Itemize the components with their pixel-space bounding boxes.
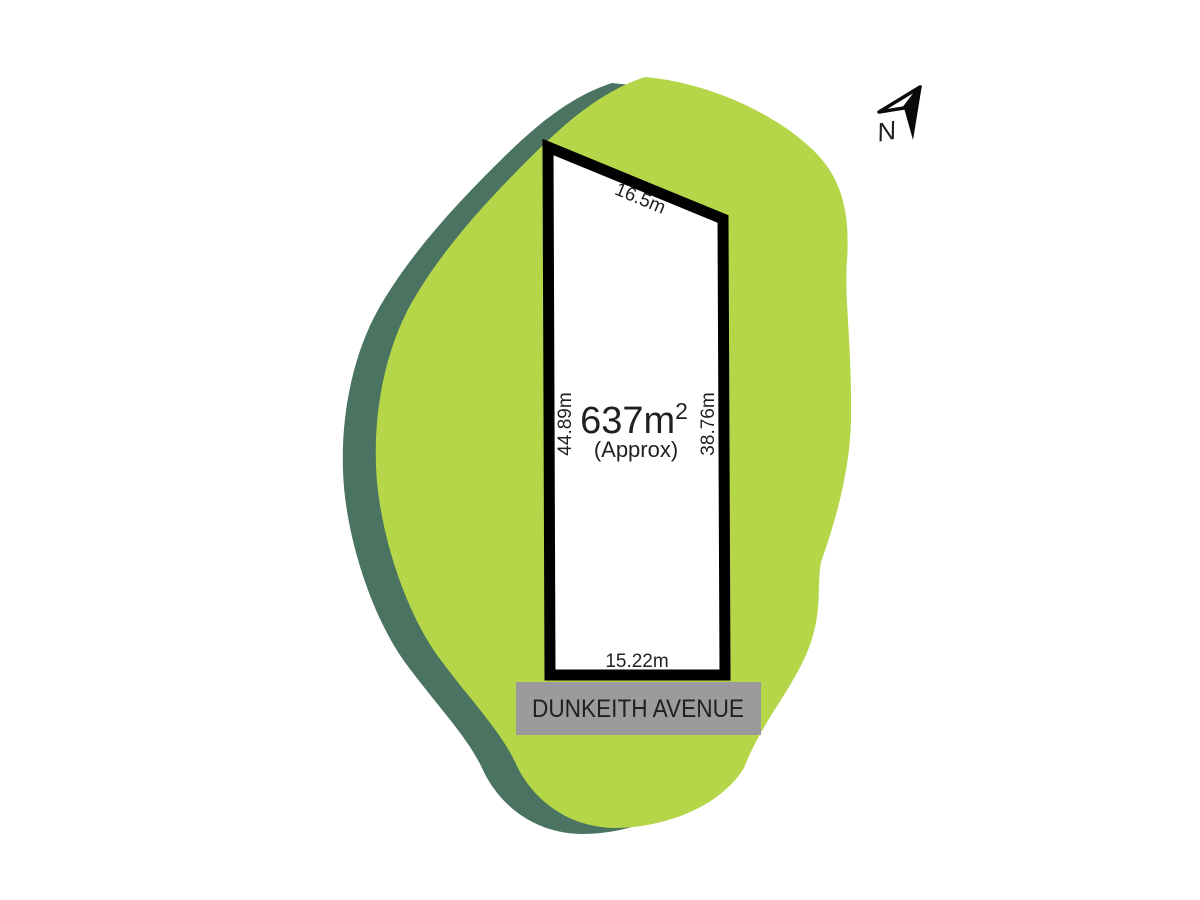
lot-area-superscript: 2	[675, 398, 688, 424]
lot-area-value: 637m	[580, 400, 675, 442]
lot-area-note: (Approx)	[594, 437, 678, 462]
lot-area: 637m2	[580, 398, 688, 442]
dimension-left: 44.89m	[555, 392, 576, 455]
lot-diagram-page: 16.5m 44.89m 38.76m 15.22m 637m2 (Approx…	[0, 0, 1200, 900]
street-label: DUNKEITH AVENUE	[532, 695, 744, 723]
north-arrow-icon: N	[875, 85, 922, 148]
dimension-bottom: 15.22m	[605, 651, 668, 672]
lot-diagram: 16.5m 44.89m 38.76m 15.22m 637m2 (Approx…	[0, 0, 1200, 900]
north-label: N	[875, 115, 899, 148]
dimension-right: 38.76m	[698, 392, 719, 455]
